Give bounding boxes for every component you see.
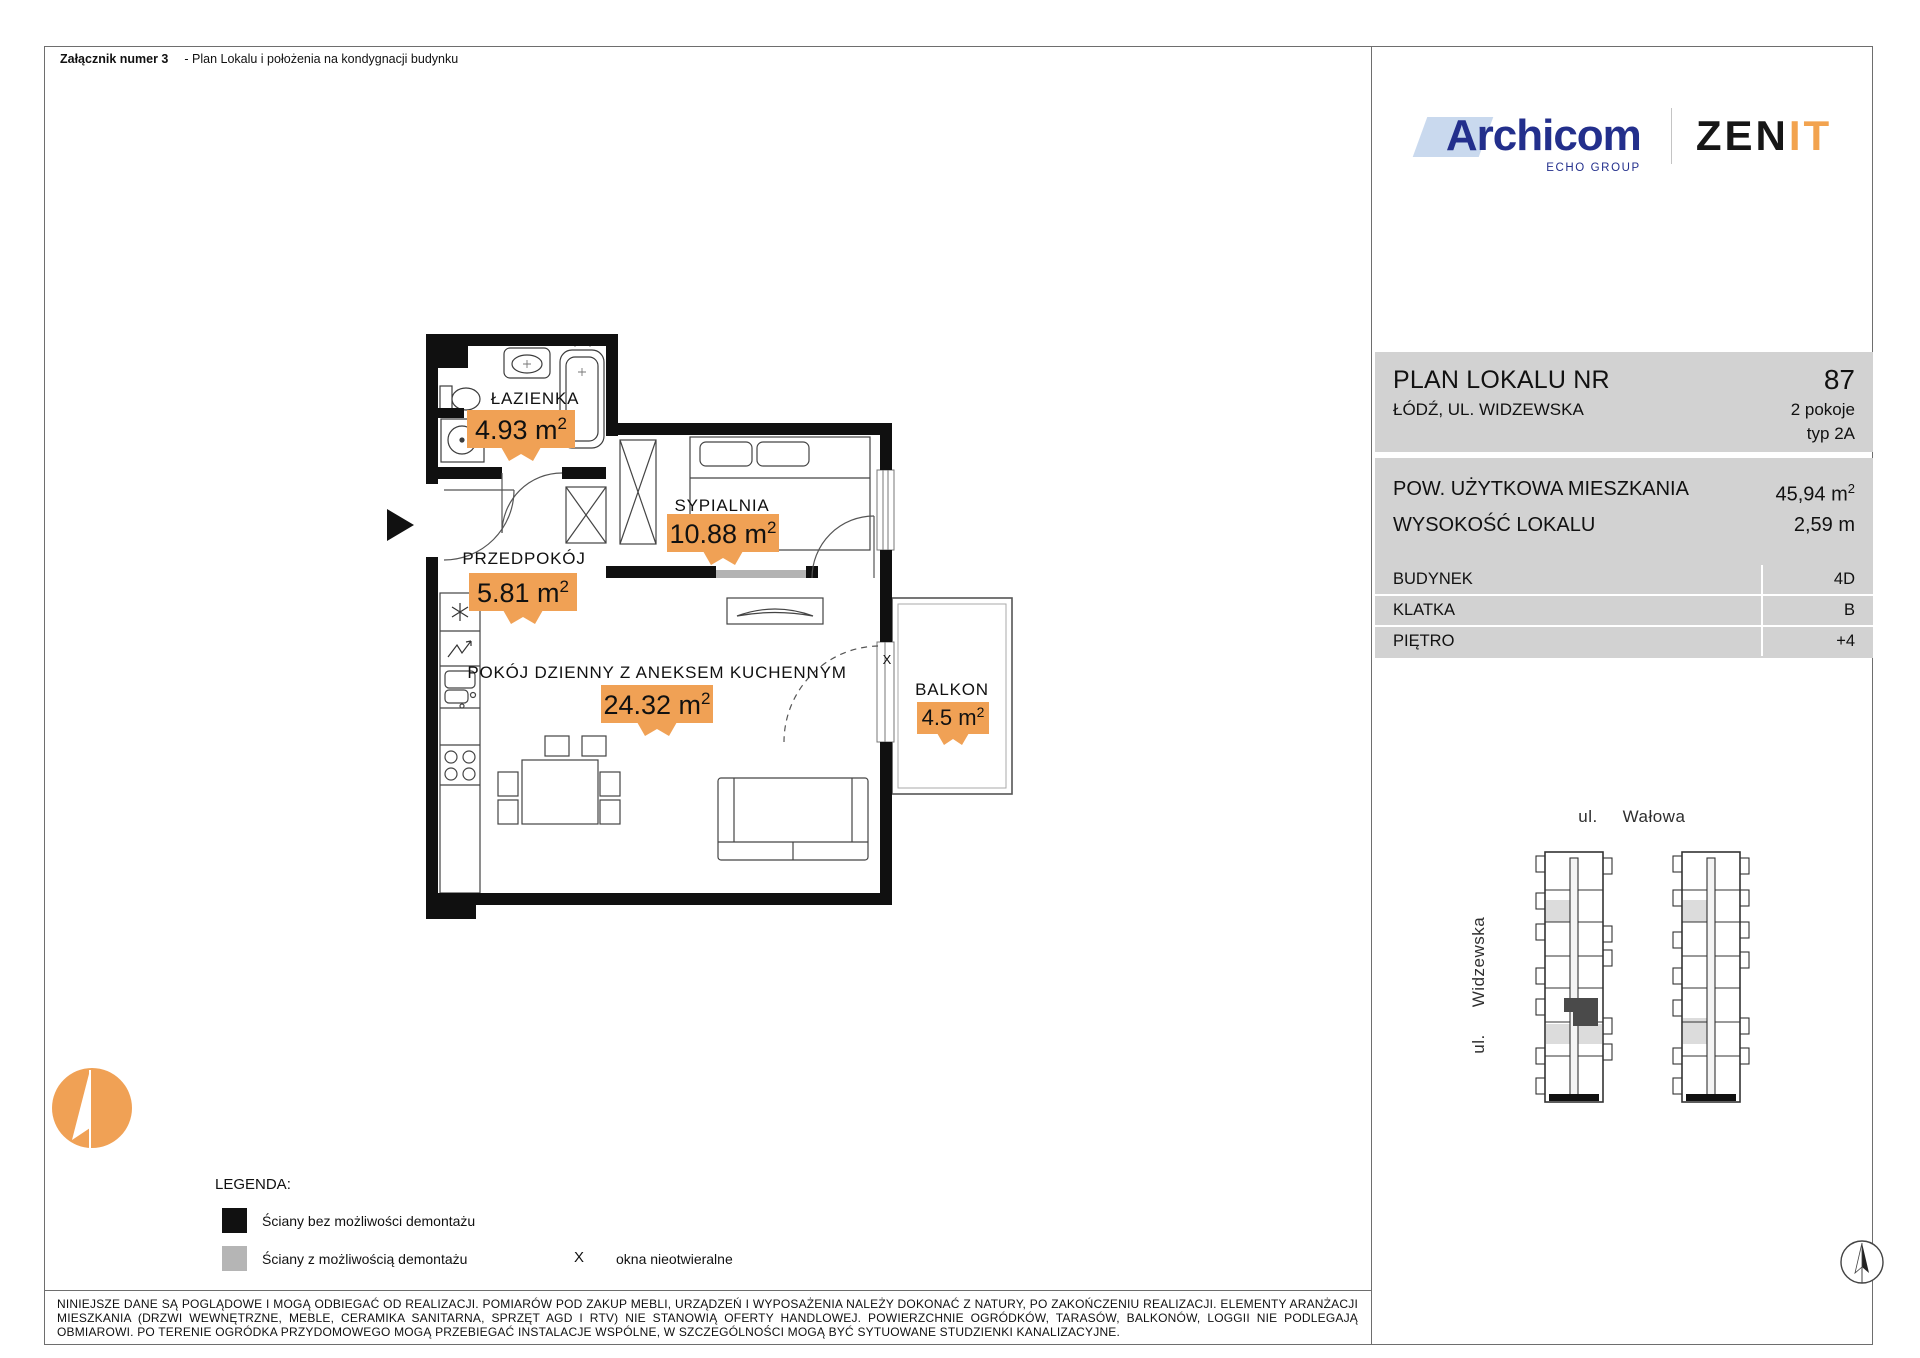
table-row: BUDYNEK 4D	[1375, 565, 1873, 596]
legend-item-label: Ściany bez możliwości demontażu	[262, 1213, 475, 1229]
unit-number: 87	[1791, 362, 1855, 398]
legend-window-marker: X	[574, 1249, 584, 1266]
usable-area-row: POW. UŻYTKOWA MIESZKANIA 45,94 m2	[1393, 474, 1855, 510]
page-border	[44, 46, 1873, 1345]
plan-title: PLAN LOKALU NR	[1393, 362, 1610, 398]
legend-gray-wall-swatch	[222, 1246, 247, 1271]
zenit-zen: ZEN	[1696, 112, 1789, 159]
archicom-logo: Archicom ECHO GROUP	[1416, 111, 1641, 161]
panel-divider	[1371, 46, 1372, 1345]
brand-logos: Archicom ECHO GROUP ZENIT	[1375, 98, 1873, 174]
legend-item-label: Ściany z możliwością demontażu	[262, 1251, 467, 1267]
height-value: 2,59 m	[1794, 510, 1855, 540]
usable-area-label: POW. UŻYTKOWA MIESZKANIA	[1393, 474, 1689, 510]
height-label: WYSOKOŚĆ LOKALU	[1393, 510, 1595, 540]
rooms-count: 2 pokoje	[1791, 398, 1855, 422]
zenit-logo: ZENIT	[1696, 112, 1832, 160]
plan-address: ŁÓDŹ, UL. WIDZEWSKA	[1393, 398, 1610, 422]
table-column-divider	[1761, 565, 1763, 656]
attachment-number: Załącznik numer 3	[60, 52, 168, 66]
logo-separator	[1671, 108, 1672, 164]
legend-title: LEGENDA:	[215, 1176, 291, 1193]
building-table: BUDYNEK 4D KLATKA B PIĘTRO +4	[1375, 565, 1873, 656]
table-row: PIĘTRO +4	[1375, 627, 1873, 656]
archicom-wordmark: Archicom	[1446, 111, 1641, 161]
legend-black-wall-swatch	[222, 1208, 247, 1233]
usable-area-value: 45,94 m2	[1776, 474, 1856, 510]
zenit-it: IT	[1789, 112, 1832, 159]
document-page: Załącznik numer 3- Plan Lokalu i położen…	[0, 0, 1920, 1358]
height-row: WYSOKOŚĆ LOKALU 2,59 m	[1393, 510, 1855, 540]
attachment-title: Załącznik numer 3- Plan Lokalu i położen…	[60, 52, 458, 66]
legend-window-label: okna nieotwieralne	[616, 1251, 733, 1267]
plan-header-box: PLAN LOKALU NR ŁÓDŹ, UL. WIDZEWSKA 87 2 …	[1375, 352, 1873, 452]
row-label: KLATKA	[1393, 601, 1455, 620]
unit-type: typ 2A	[1791, 422, 1855, 445]
row-value: B	[1844, 601, 1855, 620]
row-label: PIĘTRO	[1393, 632, 1454, 651]
disclaimer-text: NINIEJSZE DANE SĄ POGLĄDOWE I MOGĄ ODBIE…	[44, 1290, 1371, 1345]
unit-details-box: POW. UŻYTKOWA MIESZKANIA 45,94 m2 WYSOKO…	[1375, 458, 1873, 658]
table-row: KLATKA B	[1375, 596, 1873, 627]
echo-group-label: ECHO GROUP	[1546, 162, 1641, 174]
row-value: +4	[1836, 632, 1855, 651]
row-label: BUDYNEK	[1393, 570, 1473, 589]
attachment-description: - Plan Lokalu i położenia na kondygnacji…	[184, 52, 458, 66]
row-value: 4D	[1834, 570, 1855, 589]
